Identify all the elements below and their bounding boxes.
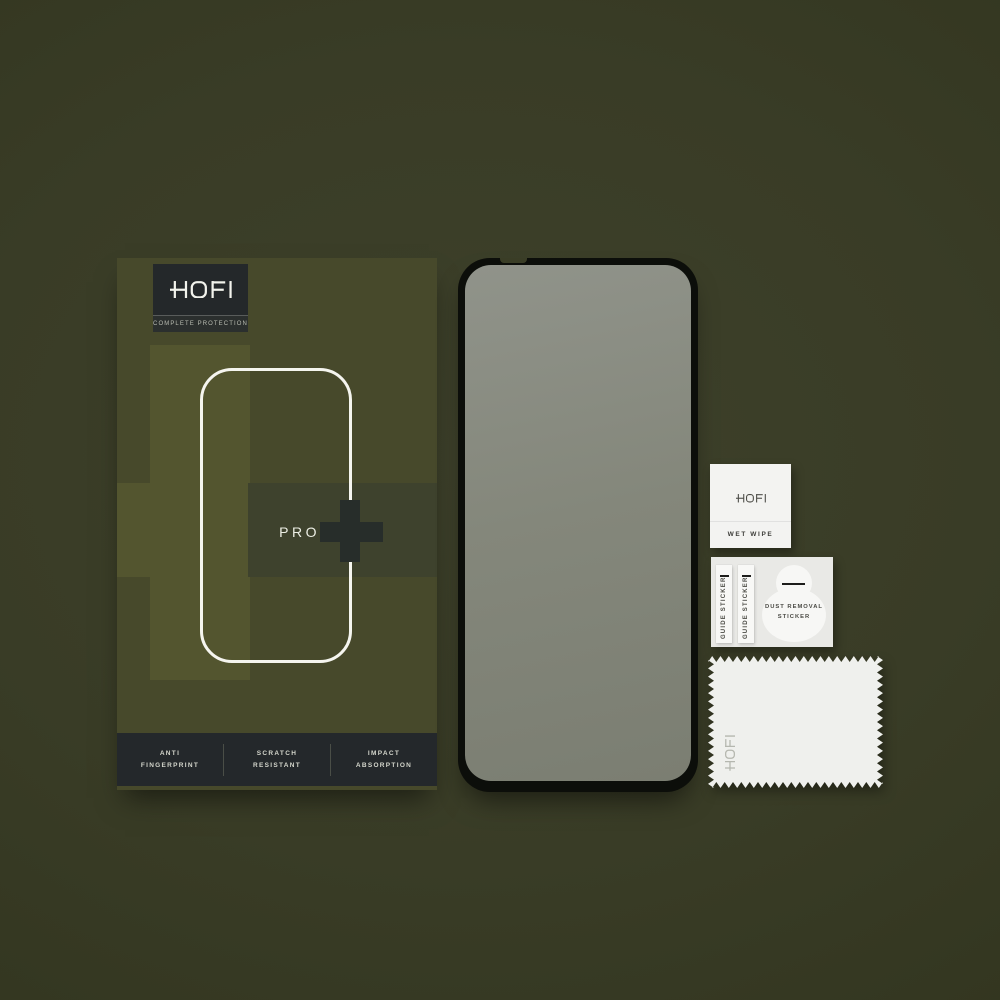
wet-wipe-packet: WET WIPE: [710, 464, 791, 548]
box-light-cross-wing: [117, 483, 150, 577]
wet-wipe-label: WET WIPE: [710, 531, 791, 538]
speaker-notch-cutout: [500, 258, 527, 263]
phone-outline-graphic: [200, 368, 352, 663]
protector-glass: [465, 265, 691, 781]
cloth-zigzag-shape: [708, 656, 883, 788]
guide-sticker-strip: GUIDE STICKER: [716, 565, 732, 643]
guide-sticker-label: GUIDE STICKER: [721, 576, 727, 639]
feature-anti-fingerprint: ANTI FINGERPRINT: [117, 748, 223, 771]
product-box: COMPLETE PROTECTION PRO ANTI FINGERPRINT…: [117, 258, 437, 790]
hofi-logo-icon: [736, 494, 766, 503]
sachet-seal-line: [710, 521, 791, 522]
hofi-logo-icon: [170, 281, 232, 299]
brand-tagline: COMPLETE PROTECTION: [153, 315, 248, 332]
plus-icon-horizontal-bar: [320, 522, 383, 542]
feature-impact-absorption: IMPACT ABSORPTION: [331, 748, 437, 771]
product-photo-scene: COMPLETE PROTECTION PRO ANTI FINGERPRINT…: [0, 0, 1000, 1000]
sticker-card: GUIDE STICKER GUIDE STICKER DUST REMOVAL…: [711, 557, 833, 647]
screen-protector: [458, 258, 698, 792]
feature-scratch-resistant: SCRATCH RESISTANT: [224, 748, 330, 771]
feature-strip: ANTI FINGERPRINT SCRATCH RESISTANT IMPAC…: [117, 733, 437, 786]
dust-removal-sticker-label: DUST REMOVAL STICKER: [759, 603, 829, 623]
sticker-dash-mark: [782, 583, 805, 585]
microfiber-cloth: [708, 656, 883, 788]
guide-sticker-strip: GUIDE STICKER: [738, 565, 754, 643]
model-name: PRO: [260, 524, 320, 540]
brand-panel: COMPLETE PROTECTION: [153, 264, 248, 332]
guide-sticker-label: GUIDE STICKER: [743, 576, 749, 639]
hofi-logo-icon: [725, 735, 735, 771]
